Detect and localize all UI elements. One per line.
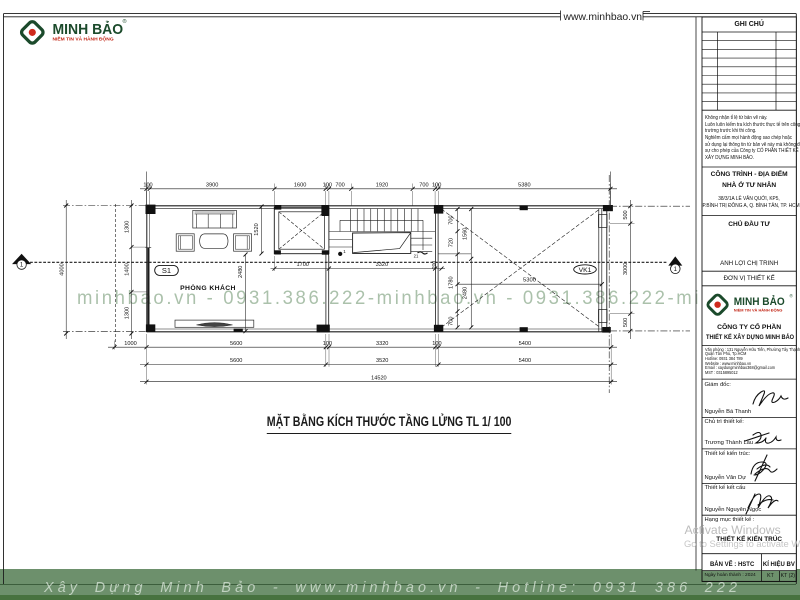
svg-text:5600: 5600 [230, 358, 242, 364]
svg-text:5380: 5380 [518, 182, 530, 188]
svg-text:700: 700 [448, 317, 454, 326]
svg-text:1520: 1520 [254, 223, 260, 235]
svg-text:1300: 1300 [124, 307, 130, 319]
svg-text:5400: 5400 [519, 358, 531, 364]
svg-text:700: 700 [448, 215, 454, 224]
svg-text:21: 21 [414, 254, 419, 259]
svg-text:1560: 1560 [463, 228, 469, 240]
svg-text:5300: 5300 [523, 278, 536, 284]
svg-text:S1: S1 [162, 266, 171, 275]
svg-text:1780: 1780 [448, 276, 454, 288]
svg-text:MINH BẢO: MINH BẢO [734, 294, 785, 308]
svg-text:1920: 1920 [376, 182, 388, 188]
svg-text:700: 700 [419, 182, 428, 188]
svg-text:MINH BẢO: MINH BẢO [53, 20, 124, 38]
svg-text:3320: 3320 [376, 262, 388, 268]
svg-text:5400: 5400 [519, 341, 531, 347]
svg-text:100: 100 [432, 182, 441, 188]
svg-text:1300: 1300 [124, 221, 130, 233]
svg-text:VK1: VK1 [579, 267, 592, 274]
svg-text:100: 100 [323, 341, 332, 347]
svg-text:3900: 3900 [206, 182, 218, 188]
svg-text:®: ® [123, 18, 127, 25]
svg-text:4000: 4000 [60, 263, 66, 275]
svg-text:100: 100 [143, 182, 152, 188]
svg-text:500: 500 [623, 210, 629, 219]
svg-text:1400: 1400 [124, 263, 130, 275]
svg-text:1: 1 [343, 249, 346, 254]
svg-text:5600: 5600 [230, 341, 242, 347]
svg-text:100: 100 [323, 182, 332, 188]
svg-text:3520: 3520 [376, 358, 388, 364]
svg-text:3000: 3000 [623, 263, 629, 275]
svg-text:2480: 2480 [463, 287, 469, 299]
svg-text:100: 100 [432, 341, 441, 347]
svg-text:NIỀM TIN VÀ HÀNH ĐỘNG: NIỀM TIN VÀ HÀNH ĐỘNG [734, 308, 783, 313]
svg-text:720: 720 [448, 238, 454, 247]
svg-text:1600: 1600 [294, 182, 306, 188]
svg-text:1700: 1700 [296, 262, 308, 268]
svg-text:3320: 3320 [376, 341, 388, 347]
svg-text:500: 500 [623, 318, 629, 327]
svg-text:1000: 1000 [124, 341, 136, 347]
svg-text:2480: 2480 [238, 266, 244, 278]
svg-text:14520: 14520 [371, 375, 387, 381]
svg-text:700: 700 [335, 182, 344, 188]
